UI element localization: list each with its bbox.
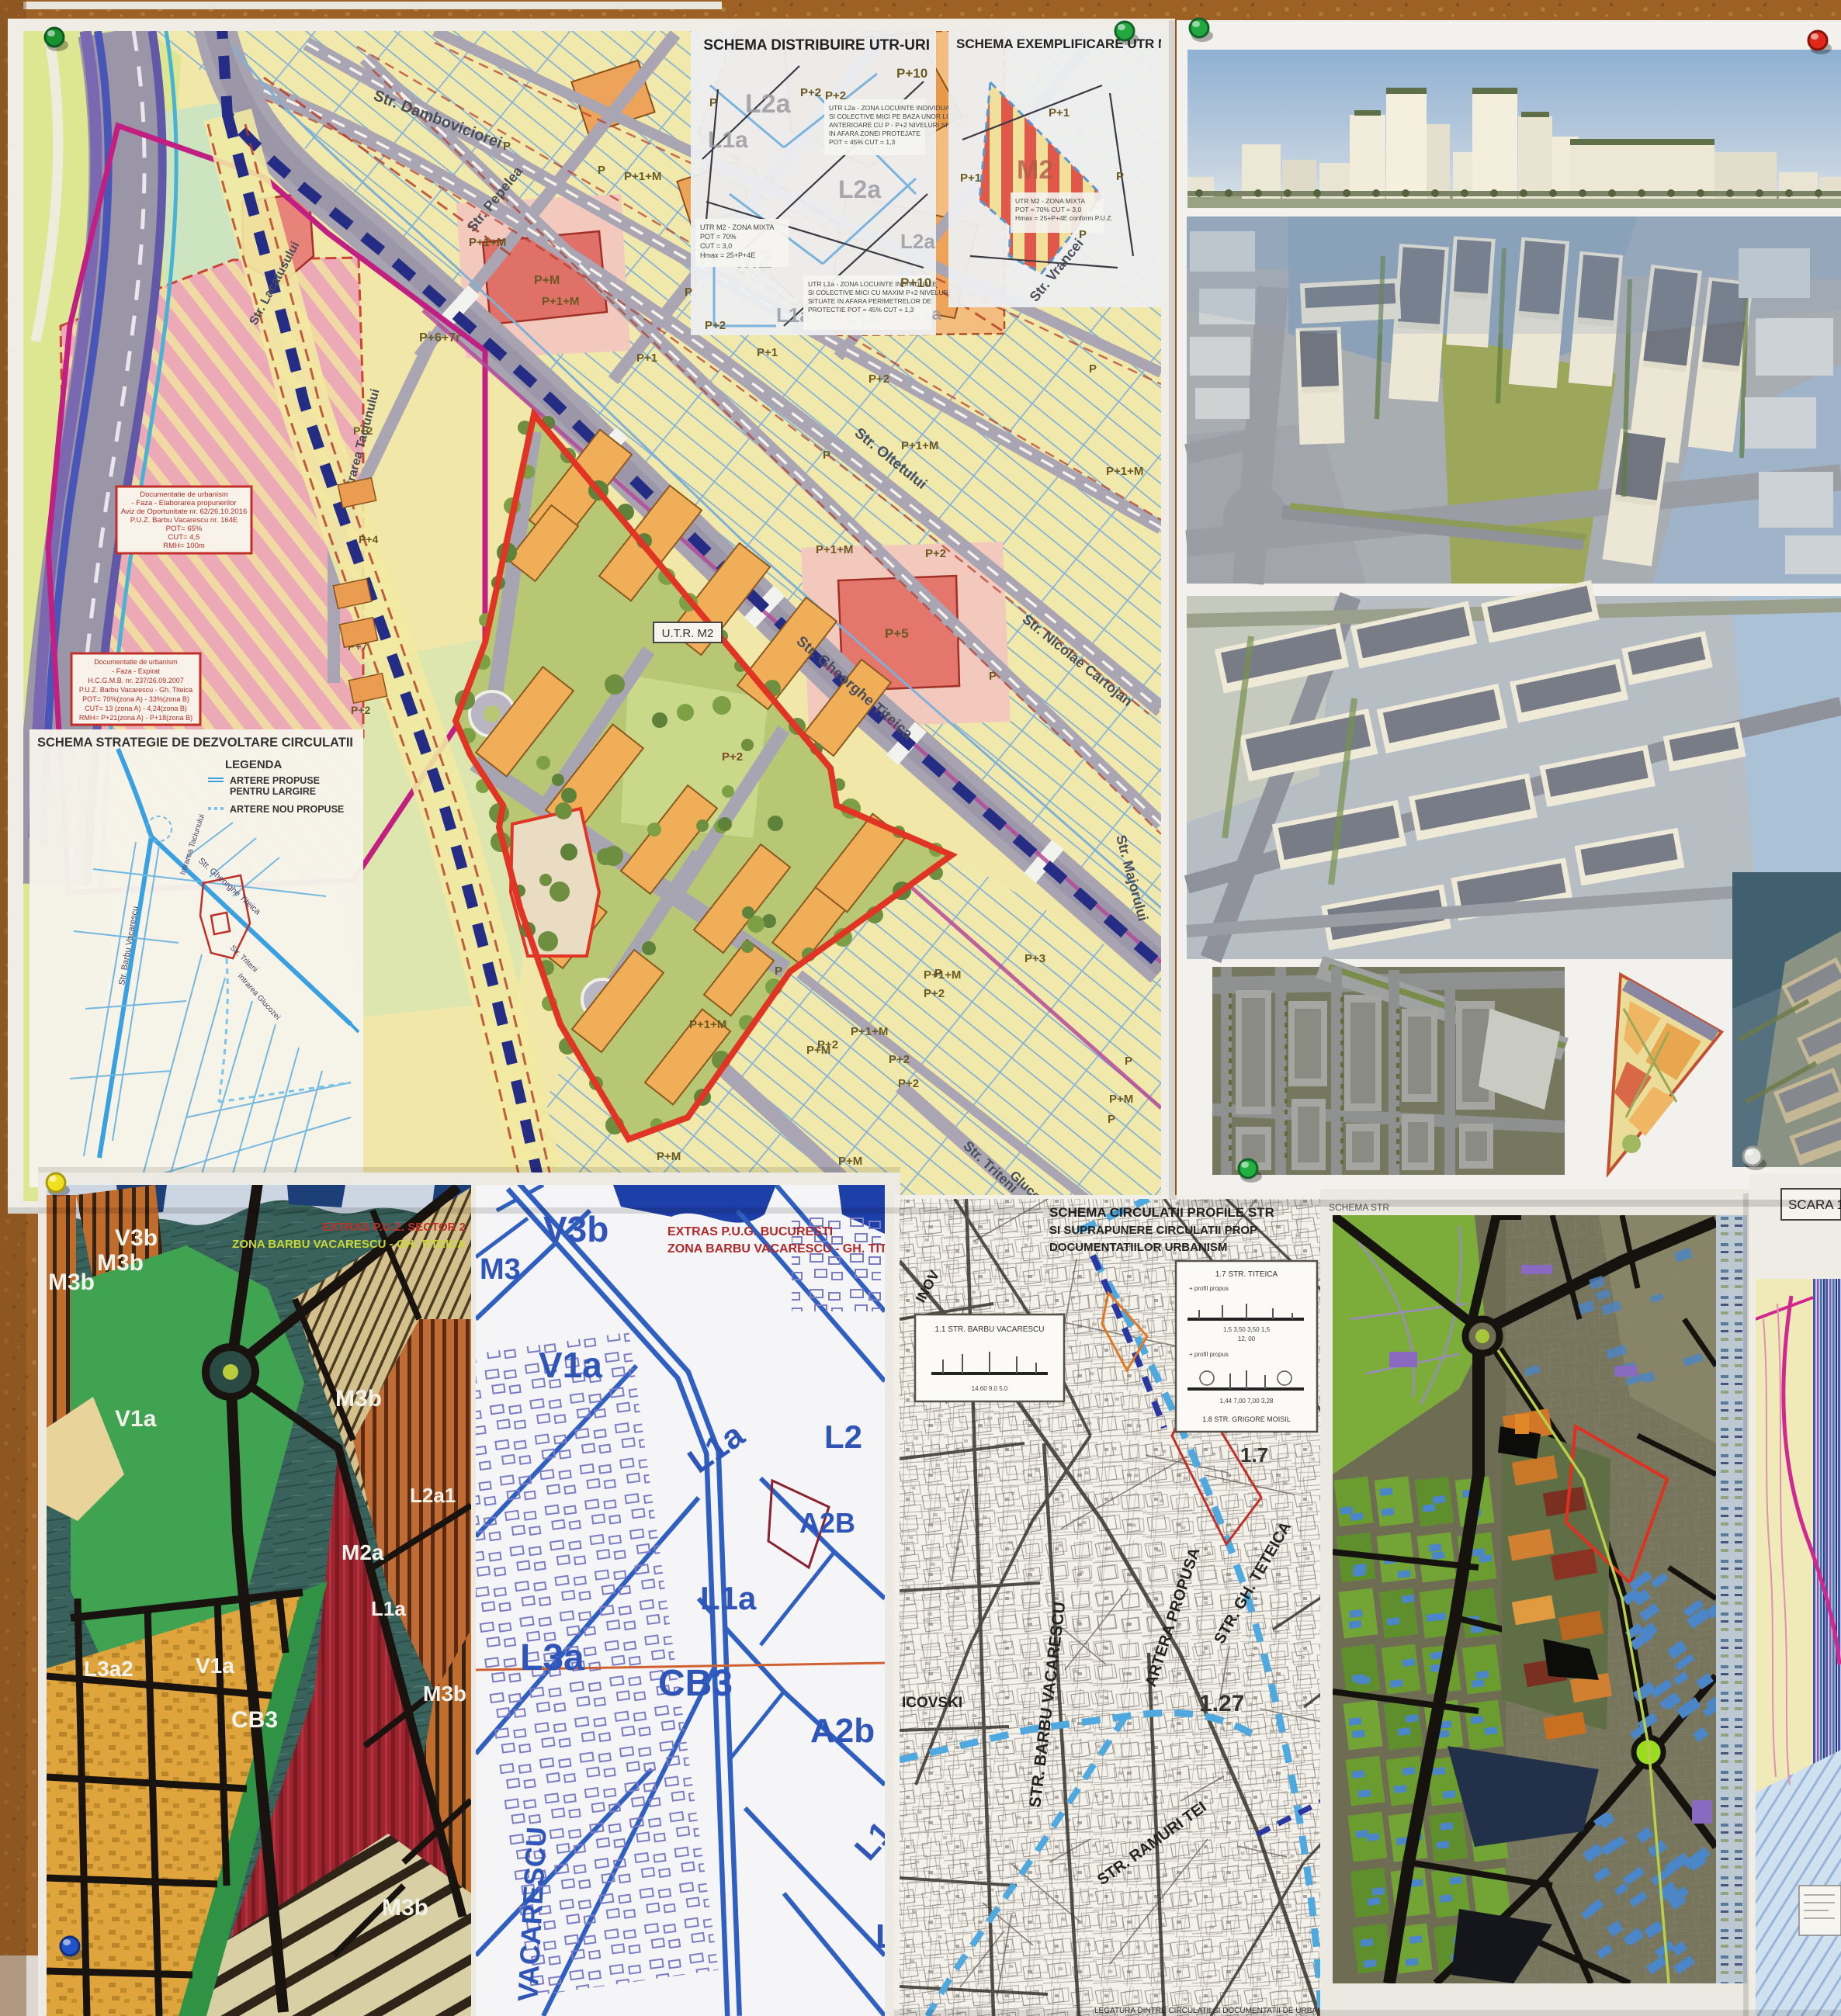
svg-text:P+M: P+M (806, 1044, 830, 1057)
svg-text:ANTERIOARE CU P - P+2 NIVELURI: ANTERIOARE CU P - P+2 NIVELURI SITUATE (829, 121, 969, 129)
svg-text:Hmax = 25+P+4E conform P.U.Z.: Hmax = 25+P+4E conform P.U.Z. (1015, 214, 1113, 222)
svg-text:M3b: M3b (335, 1386, 382, 1412)
svg-text:V1a: V1a (539, 1345, 602, 1385)
svg-text:P+6+7r: P+6+7r (419, 331, 460, 345)
svg-text:L1a: L1a (371, 1597, 406, 1620)
svg-text:SI SUPRAPUNERE CIRCULATII PROP: SI SUPRAPUNERE CIRCULATII PROP (1049, 1224, 1257, 1237)
svg-text:POT = 70%: POT = 70% (700, 233, 737, 241)
svg-text:P+2: P+2 (825, 89, 846, 102)
svg-text:P+3: P+3 (1025, 952, 1045, 965)
svg-text:V1a: V1a (196, 1654, 234, 1678)
svg-text:+ profil propus: + profil propus (1189, 1351, 1229, 1358)
svg-text:M2a: M2a (342, 1540, 384, 1564)
svg-text:1.27: 1.27 (1199, 1691, 1244, 1716)
svg-text:V3b: V3b (543, 1209, 608, 1249)
svg-text:P: P (1116, 170, 1124, 183)
svg-text:ARTERE NOU PROPUSE: ARTERE NOU PROPUSE (230, 804, 344, 815)
svg-text:PROTECTIE POT = 45% CUT =: PROTECTIE POT = 45% CUT = 1,3 (808, 306, 914, 313)
svg-text:1.7: 1.7 (1240, 1443, 1268, 1467)
svg-text:L1a: L1a (700, 1580, 757, 1616)
svg-text:+ profil propus: + profil propus (1189, 1285, 1229, 1292)
svg-text:UTR L2a - ZONA LOCUINTE INDIVI: UTR L2a - ZONA LOCUINTE INDIVIDUALE (829, 104, 958, 112)
svg-text:P: P (598, 164, 605, 177)
svg-text:P+1: P+1 (1049, 106, 1070, 120)
svg-text:U.T.R. M2: U.T.R. M2 (662, 627, 714, 640)
svg-text:POT= 65%: POT= 65% (166, 525, 203, 533)
svg-text:P+M: P+M (657, 1150, 681, 1163)
svg-text:UTR M2 - ZONA MIXTA: UTR M2 - ZONA MIXTA (700, 223, 774, 231)
svg-text:POT = 70% CUT = 3,0: POT = 70% CUT = 3,0 (1015, 206, 1081, 213)
svg-text:Aviz de Oportunitate nr. 62/26: Aviz de Oportunitate nr. 62/26.10.2016 (121, 507, 248, 516)
svg-text:P+M: P+M (1109, 1093, 1133, 1106)
svg-text:L2: L2 (824, 1418, 862, 1455)
svg-text:UTR M2 - ZONA MIXTA: UTR M2 - ZONA MIXTA (1015, 197, 1085, 205)
svg-text:P+1+M: P+1+M (1106, 465, 1143, 478)
svg-text:P: P (1108, 1113, 1115, 1126)
svg-text:P: P (1079, 228, 1087, 241)
svg-text:L2a1: L2a1 (410, 1484, 456, 1507)
svg-text:1,44 7,00 7,00 3,28: 1,44 7,00 7,00 3,28 (1220, 1398, 1274, 1405)
svg-text:P+10: P+10 (896, 66, 927, 81)
svg-text:14.60 9.0 5.: 14.60 9.0 5.0 (972, 1385, 1008, 1392)
svg-text:P.U.Z. Barbu Vacarescu - Gh. T: P.U.Z. Barbu Vacarescu - Gh. Titeica (79, 686, 192, 694)
svg-text:P+1+M: P+1+M (816, 543, 853, 556)
svg-text:P.U.Z. Barbu Vacarescu nr. 164: P.U.Z. Barbu Vacarescu nr. 164E (130, 516, 238, 525)
svg-text:POT= 70%(zona A) - 33%(zona B): POT= 70%(zona A) - 33%(zona B) (82, 695, 189, 703)
svg-text:Documentatie de urbanism: Documentatie de urbanism (94, 658, 178, 666)
svg-text:SCHEMA EXEMPLIFICARE UTR M2: SCHEMA EXEMPLIFICARE UTR M2 (956, 36, 1177, 51)
svg-text:P+1+M: P+1+M (624, 170, 661, 183)
svg-text:M3: M3 (480, 1253, 521, 1286)
svg-text:P: P (1125, 1055, 1132, 1068)
svg-text:P+10: P+10 (900, 275, 931, 290)
svg-text:A2b: A2b (810, 1712, 875, 1750)
svg-text:L2a: L2a (900, 230, 935, 253)
svg-text:P+2: P+2 (925, 547, 946, 560)
svg-text:P+1: P+1 (757, 346, 778, 359)
svg-text:EXTRAS P.U.G. BUCURESTI: EXTRAS P.U.G. BUCURESTI (667, 1225, 833, 1238)
svg-text:EXTRAS P.U.Z. SECTOR 2: EXTRAS P.U.Z. SECTOR 2 (323, 1221, 466, 1234)
svg-text:RMH= 100m: RMH= 100m (163, 542, 205, 550)
svg-text:ARTERE PROPUSE: ARTERE PROPUSE (230, 775, 320, 786)
svg-text:P+2: P+2 (722, 750, 743, 764)
svg-text:1.8 STR. GRIGORE MOISIL: 1.8 STR. GRIGORE MOISIL (1202, 1415, 1291, 1423)
svg-text:CUT= 13 (zona A) - 4,24(zona B: CUT= 13 (zona A) - 4,24(zona B) (85, 705, 187, 712)
svg-text:L1a: L1a (708, 127, 748, 153)
svg-text:Documentatie de urbanism: Documentatie de urbanism (140, 490, 228, 499)
svg-text:P+1+M: P+1+M (901, 439, 938, 452)
svg-text:V1a: V1a (115, 1406, 157, 1432)
svg-text:L3a2: L3a2 (84, 1657, 133, 1681)
svg-text:- Faza - Expirat: - Faza - Expirat (112, 667, 160, 675)
svg-text:P: P (709, 96, 717, 109)
svg-text:M2: M2 (1017, 155, 1053, 185)
svg-text:P+1: P+1 (960, 171, 981, 185)
svg-text:P+M: P+M (838, 1155, 862, 1168)
svg-text:P: P (823, 449, 830, 462)
svg-text:1.1 STR. BARBU VACARESCU: 1.1 STR. BARBU VACARESCU (935, 1325, 1045, 1334)
svg-text:P+2: P+2 (351, 704, 371, 716)
svg-text:L3a: L3a (520, 1637, 584, 1678)
svg-text:P+4: P+4 (359, 533, 379, 546)
svg-text:CUT= 4,5: CUT= 4,5 (168, 533, 200, 542)
svg-text:L2a: L2a (838, 175, 881, 203)
svg-text:P+1+M: P+1+M (469, 236, 506, 249)
svg-text:P+1: P+1 (636, 352, 657, 365)
svg-text:P: P (775, 965, 782, 978)
svg-text:- Faza - Elaborarea propuneril: - Faza - Elaborarea propunerilor (131, 499, 236, 507)
svg-text:ZONA BARBU VACARESCU - GH. TIT: ZONA BARBU VACARESCU - GH. TITEICA (667, 1242, 917, 1256)
svg-text:P+2: P+2 (924, 987, 945, 1000)
svg-text:ICOVSKI: ICOVSKI (902, 1695, 962, 1711)
svg-text:PENTRU LARGIRE: PENTRU LARGIRE (230, 786, 316, 797)
svg-text:RMH= P+21(zona A) - P+18(zona: RMH= P+21(zona A) - P+18(zona B) (79, 714, 192, 722)
svg-text:V3b: V3b (115, 1225, 158, 1251)
svg-text:L2a: L2a (745, 89, 792, 119)
svg-text:A2B: A2B (799, 1507, 855, 1539)
svg-text:P+1+M: P+1+M (542, 295, 579, 308)
svg-text:H.C.G.M.B. nr. 237/26.09.2007: H.C.G.M.B. nr. 237/26.09.2007 (88, 677, 184, 684)
svg-text:P: P (503, 140, 511, 153)
svg-text:M3b: M3b (423, 1682, 466, 1706)
svg-text:M3b: M3b (382, 1895, 428, 1921)
svg-text:P+5: P+5 (885, 626, 909, 641)
svg-text:12, 00: 12, 00 (1238, 1335, 1256, 1342)
svg-text:SCHEMA DISTRIBUIRE UTR-URI: SCHEMA DISTRIBUIRE UTR-URI (703, 37, 930, 54)
svg-text:IN AFARA ZONEI PROTEJATE: IN AFARA ZONEI PROTEJATE (829, 130, 920, 137)
svg-text:P+2: P+2 (705, 319, 726, 332)
svg-text:CUT = 3,0: CUT = 3,0 (700, 242, 732, 250)
svg-text:SCHEMA STRATEGIE DE DEZVOLTARE: SCHEMA STRATEGIE DE DEZVOLTARE CIRCULATI… (37, 736, 353, 750)
svg-text:P+2: P+2 (889, 1053, 910, 1066)
svg-text:ZONA BARBU VACARESCU - GH. TIT: ZONA BARBU VACARESCU - GH. TITEICA (232, 1238, 466, 1251)
svg-text:P: P (1089, 362, 1097, 376)
svg-text:P+2: P+2 (800, 86, 821, 99)
svg-text:1,5 3,50 3,50 1,5: 1,5 3,50 3,50 1,5 (1223, 1326, 1271, 1333)
svg-text:POT = 45% CUT = 1,3: POT = 45% CUT = 1,3 (829, 138, 895, 146)
svg-text:CB3: CB3 (658, 1663, 733, 1704)
svg-text:SITUATE IN AFARA PERIMETRELOR: SITUATE IN AFARA PERIMETRELOR DE (808, 297, 931, 305)
svg-text:P+2: P+2 (353, 424, 373, 437)
svg-text:CB3: CB3 (231, 1707, 278, 1733)
svg-text:M3b: M3b (97, 1250, 144, 1276)
svg-text:P+1+M: P+1+M (851, 1025, 888, 1038)
svg-text:Hmax = 25+P+4E: Hmax = 25+P+4E (700, 251, 755, 259)
svg-text:P+1+M: P+1+M (924, 968, 961, 982)
svg-text:P: P (685, 286, 692, 299)
svg-text:P+M: P+M (534, 274, 560, 287)
svg-text:M3b: M3b (48, 1270, 95, 1295)
svg-text:P+2: P+2 (868, 372, 889, 386)
svg-text:1.7 STR. TITEICA: 1.7 STR. TITEICA (1215, 1270, 1278, 1279)
svg-text:P: P (989, 670, 997, 683)
svg-text:LEGENDA: LEGENDA (225, 758, 283, 771)
svg-text:P+1+M: P+1+M (689, 1018, 726, 1031)
svg-text:DOCUMENTATIILOR URBANISM: DOCUMENTATIILOR URBANISM (1049, 1241, 1227, 1254)
svg-text:P+2: P+2 (898, 1077, 919, 1090)
